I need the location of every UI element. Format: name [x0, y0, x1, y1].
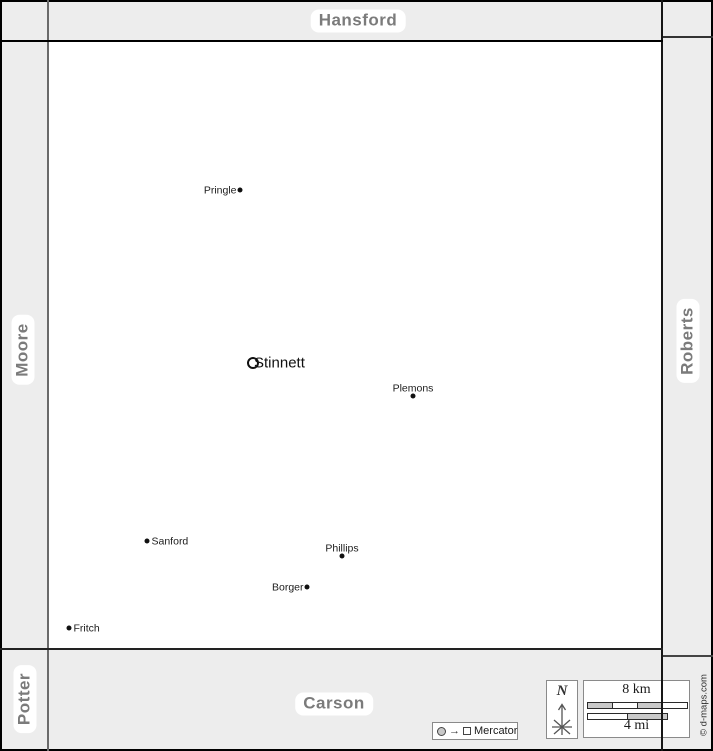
town-dot-marker — [67, 626, 72, 631]
arrow-right-icon: → — [449, 726, 460, 737]
neighbor-label-potter: Potter — [14, 665, 37, 733]
neighbor-label-roberts: Roberts — [677, 299, 700, 383]
boundary-line-topright-horizontal — [663, 36, 713, 38]
town-label-stinnett: Stinnett — [254, 355, 305, 372]
scale-segment — [638, 703, 663, 708]
town-dot-marker — [305, 585, 310, 590]
boundary-line-top-horizontal — [0, 40, 663, 42]
town-label-sanford: Sanford — [152, 535, 189, 547]
projection-legend: → Mercator — [432, 722, 518, 740]
town-sanford: Sanford — [145, 539, 150, 544]
town-label-borger: Borger — [272, 581, 304, 593]
neighbor-label-carson: Carson — [295, 693, 373, 716]
neighbor-label-moore: Moore — [12, 315, 35, 385]
scale-km-label: 8 km — [584, 682, 689, 698]
north-arrow-icon — [549, 699, 575, 737]
town-stinnett: Stinnett — [247, 357, 259, 369]
scale-km-bar — [587, 702, 688, 709]
copyright-credit: © d-maps.com — [699, 674, 710, 736]
globe-circle-icon — [437, 727, 446, 736]
neighbor-label-hansford: Hansford — [311, 10, 406, 33]
scale-segment — [613, 703, 638, 708]
projection-name: Mercator — [474, 725, 517, 737]
town-plemons: Plemons — [411, 394, 416, 399]
town-label-phillips: Phillips — [325, 543, 358, 555]
scale-mi-label: 4 mi — [584, 718, 689, 734]
boundary-line-bottom-horizontal — [0, 648, 663, 650]
town-label-fritch: Fritch — [74, 622, 100, 634]
town-label-pringle: Pringle — [204, 184, 237, 196]
scale-bar-box: 8 km 4 mi — [583, 680, 690, 738]
north-label: N — [547, 683, 577, 699]
boundary-line-bottomright-horizontal — [663, 655, 713, 657]
town-pringle: Pringle — [238, 188, 243, 193]
flat-map-square-icon — [463, 727, 471, 735]
boundary-line-left-vertical — [47, 0, 49, 751]
town-dot-marker — [238, 188, 243, 193]
boundary-line-right-vertical — [661, 0, 663, 751]
town-dot-marker — [145, 539, 150, 544]
compass-box: N — [546, 680, 578, 739]
towns-layer: PringleStinnettPlemonsSanfordPhillipsBor… — [0, 0, 713, 751]
scale-segment — [663, 703, 687, 708]
scale-segment — [588, 703, 613, 708]
town-borger: Borger — [305, 585, 310, 590]
town-label-plemons: Plemons — [393, 383, 434, 395]
town-phillips: Phillips — [340, 554, 345, 559]
town-fritch: Fritch — [67, 626, 72, 631]
county-map: Hansford Moore Roberts Carson Potter Pri… — [0, 0, 713, 751]
